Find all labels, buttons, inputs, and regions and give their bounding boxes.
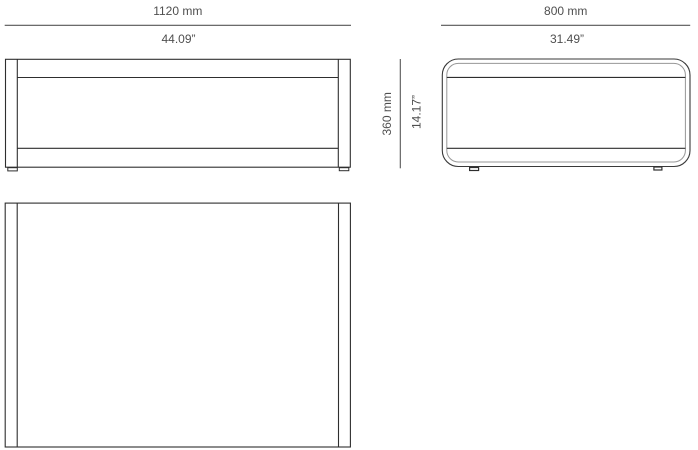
svg-text:1120 mm: 1120 mm — [153, 4, 202, 18]
svg-text:360 mm: 360 mm — [380, 92, 394, 135]
svg-text:31.49”: 31.49” — [550, 32, 584, 46]
svg-text:44.09”: 44.09” — [161, 32, 195, 46]
svg-text:14.17”: 14.17” — [410, 95, 424, 129]
svg-text:800 mm: 800 mm — [544, 4, 587, 18]
